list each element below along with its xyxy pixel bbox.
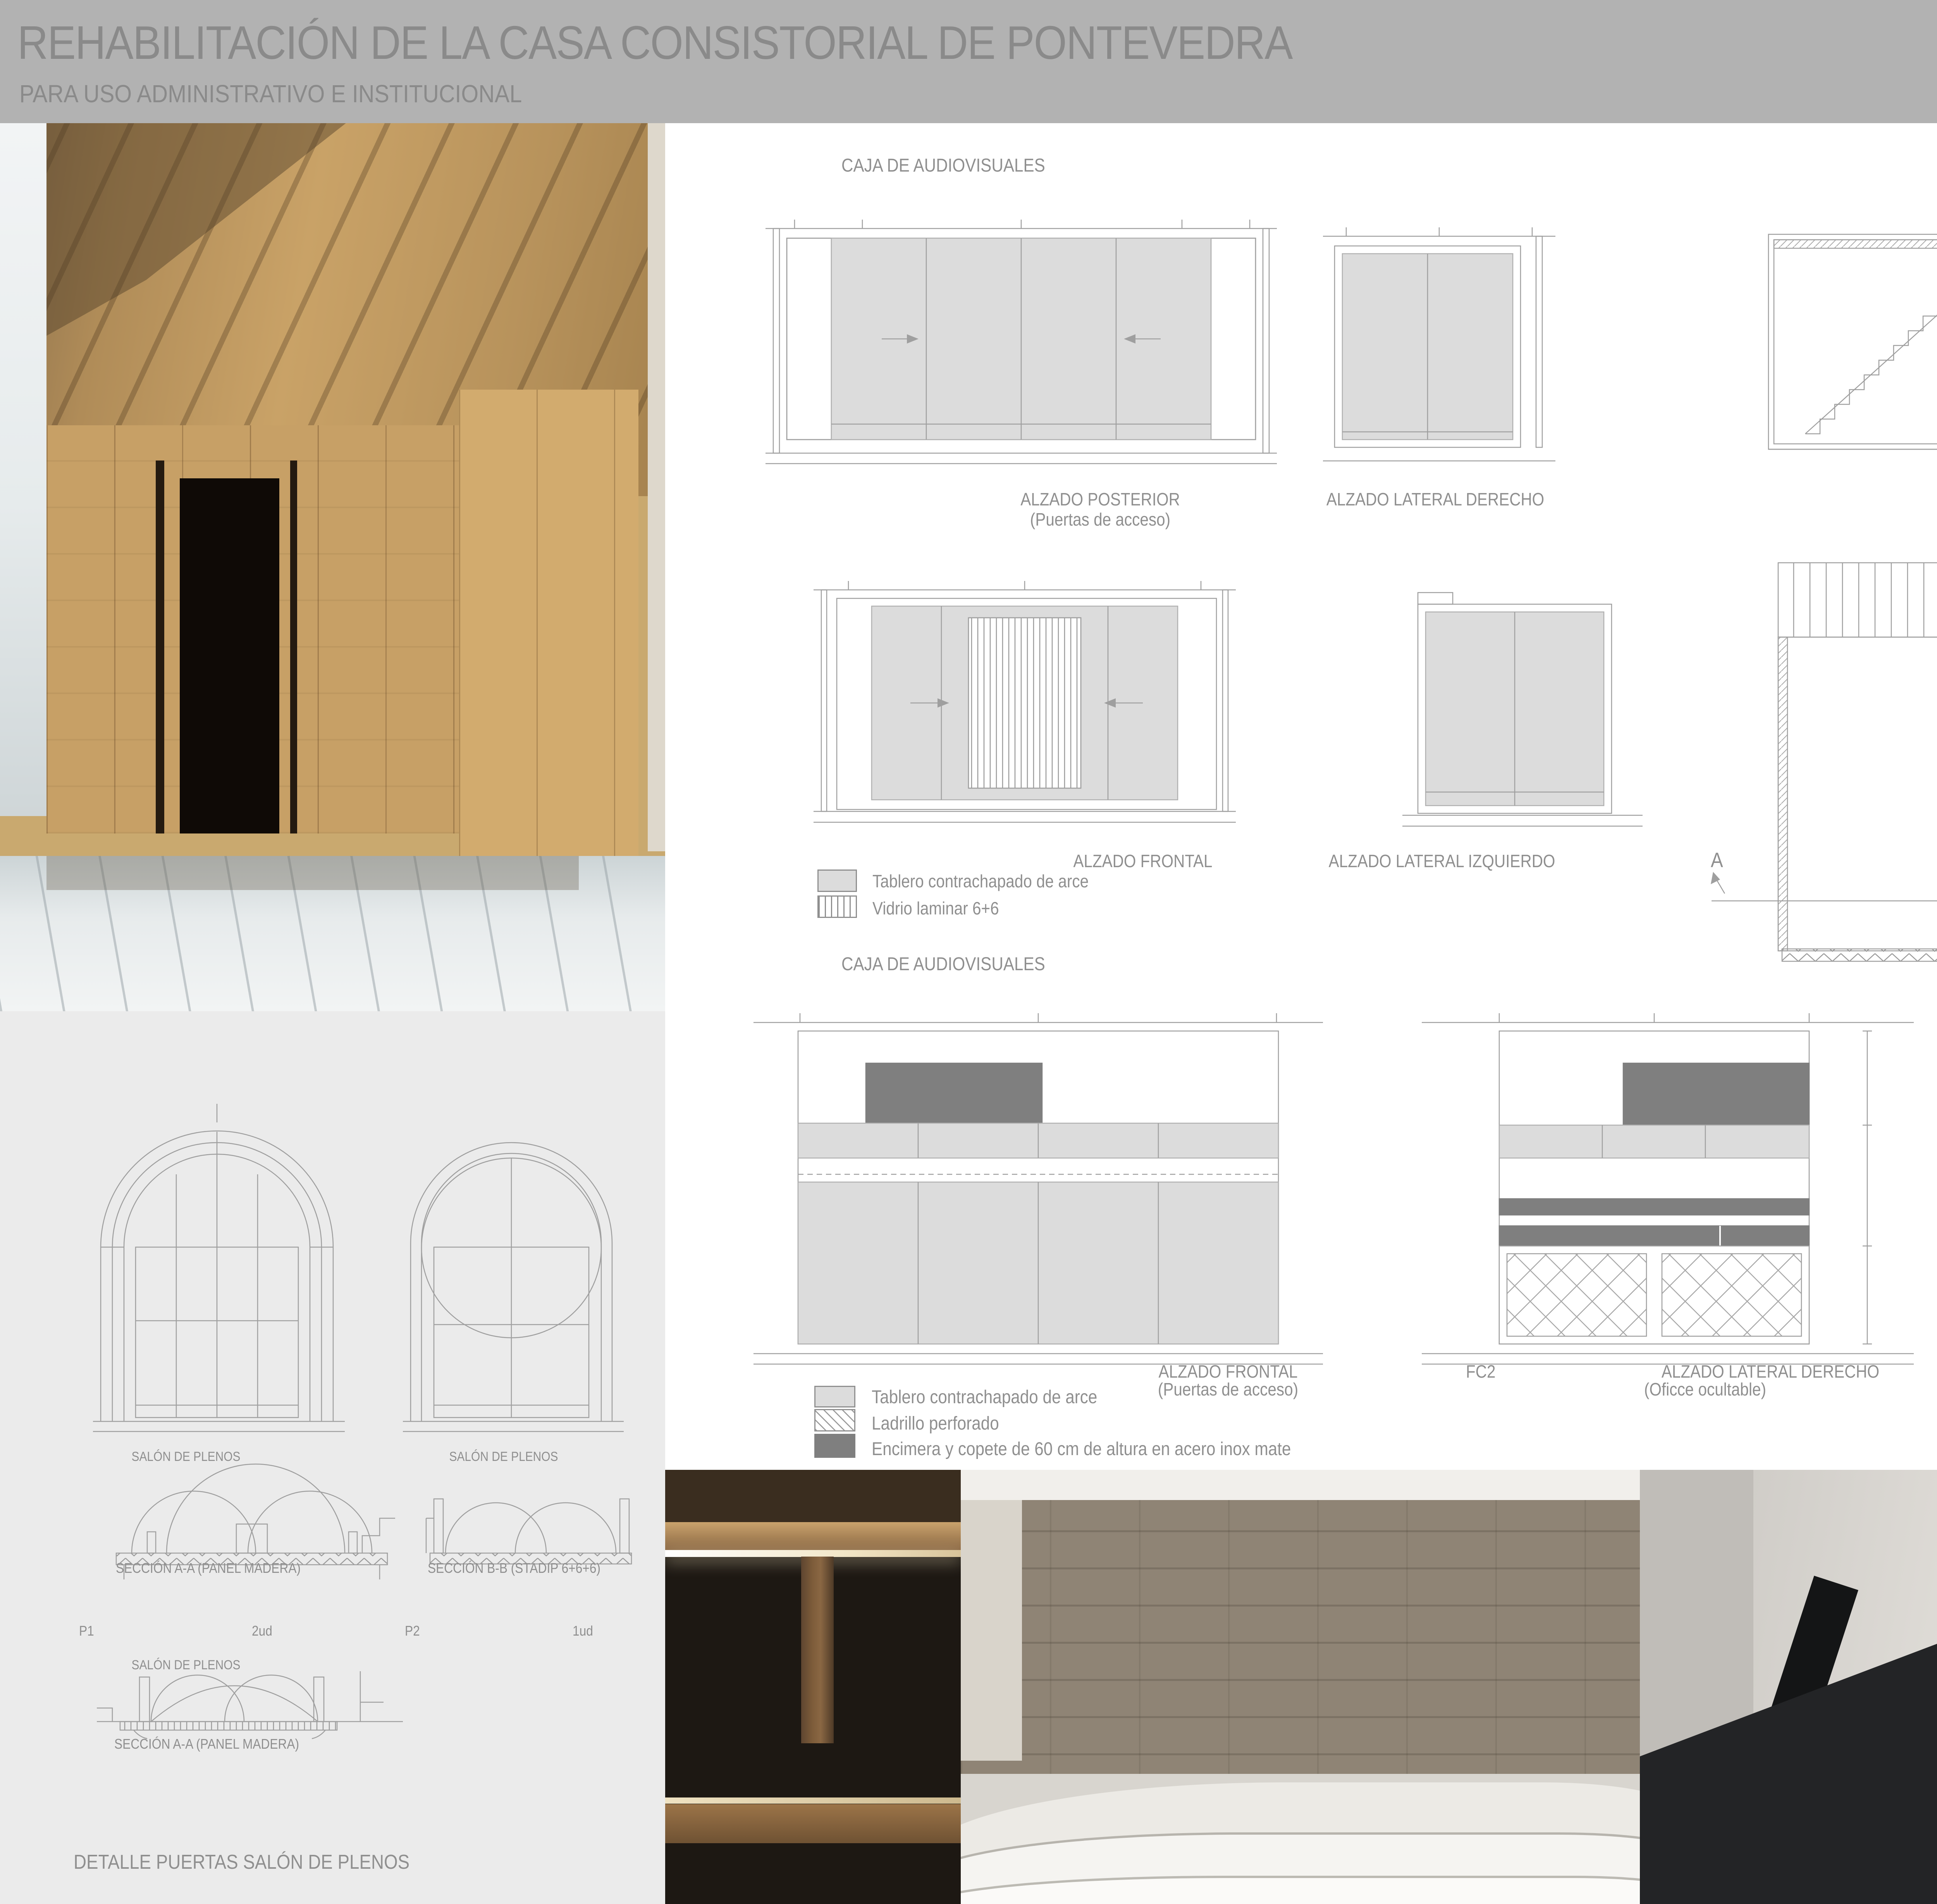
legend-swatch-plywood-2 [814, 1386, 855, 1407]
av-bottom-title: CAJA DE AUDIOVISUALES [841, 954, 1045, 975]
alzado-lateral-derecho-drawing [1323, 223, 1555, 471]
alzado-frontal-mid-label: ALZADO FRONTAL [1073, 851, 1212, 871]
alzado-lateral-izquierdo-mid-label: ALZADO LATERAL IZQUIERDO [1329, 851, 1555, 871]
photo-ceiling-band [961, 1470, 1640, 1500]
alzado-lateral-derecho-label: ALZADO LATERAL DERECHO [1326, 489, 1544, 510]
alzado-lateral-izquierdo-mid-drawing [1402, 583, 1643, 854]
legend-swatch-steel [814, 1434, 855, 1458]
legend-swatch-brick [814, 1409, 855, 1431]
alzado-frontal-puertas-sublabel: (Puertas de acceso) [1158, 1379, 1298, 1400]
seccion-aa-panel-label-2: SECCIÓN A-A (PANEL MADERA) [114, 1736, 299, 1752]
legend-swatch-plywood-1 [817, 870, 857, 892]
photo-steel-wood-detail [1640, 1470, 1937, 1904]
legend-plywood-label-2: Tablero contrachapado de arce [872, 1387, 1097, 1408]
legend-glass-label: Vidrio laminar 6+6 [872, 898, 999, 919]
photo-lower-shelf [665, 1804, 961, 1843]
photo-door-opening [180, 478, 280, 833]
alzado-frontal-drawing [814, 575, 1236, 862]
arch-door-drawing-2 [387, 1073, 639, 1445]
photo-led-strip-1 [665, 1550, 961, 1557]
photo-shelf-top [665, 1470, 961, 1522]
p2-qty-label: 1ud [573, 1623, 593, 1639]
legend-plywood-label-1: Tablero contrachapado de arce [872, 871, 1089, 892]
photo-wood-box-side-joints [459, 390, 639, 860]
legend-swatch-glass [817, 895, 857, 918]
alzado-frontal-puertas-drawing [753, 1007, 1323, 1387]
photo-stone-stairs [961, 1470, 1640, 1904]
salon-plenos-label-1: SALÓN DE PLENOS [131, 1449, 240, 1464]
alzado-posterior-label: ALZADO POSTERIOR [1020, 489, 1180, 510]
legend-brick-label: Ladrillo perforado [872, 1413, 999, 1434]
photo-side-wall [961, 1500, 1022, 1761]
photo-window-light [0, 123, 46, 816]
salon-plenos-label-2: SALÓN DE PLENOS [449, 1449, 558, 1464]
p1-qty-label: 2ud [252, 1623, 272, 1639]
project-title: REHABILITACIÓN DE LA CASA CONSISTORIAL D… [17, 15, 1292, 70]
photo-shelf-led [665, 1470, 961, 1904]
alzado-posterior-sublabel: (Puertas de acceso) [1030, 509, 1170, 530]
photo-floor-reflection [46, 856, 579, 890]
photo-right-wall [648, 123, 665, 851]
planta-center-drawing [1705, 560, 1937, 1063]
legend-steel-label: Encimera y copete de 60 cm de altura en … [872, 1438, 1291, 1460]
presentation-board: REHABILITACIÓN DE LA CASA CONSISTORIAL D… [0, 0, 1937, 1904]
photo-led-strip-2 [665, 1797, 961, 1804]
arch-door-drawing-1 [70, 1073, 368, 1445]
alzado-posterior-drawing [766, 215, 1277, 471]
section-mark-a: A [1711, 848, 1723, 872]
photo-wall-slot-left [156, 461, 164, 833]
p1-label: P1 [79, 1623, 94, 1639]
p2-label: P2 [405, 1623, 420, 1639]
fc2-oficce-drawing [1422, 1007, 1914, 1387]
seccion-aa-stair-drawing [1767, 232, 1937, 461]
alzado-lateral-derecho-oficce-sublabel: (Oficce ocultable) [1644, 1379, 1766, 1400]
photo-wood-box-side [459, 390, 639, 860]
photo-marble-floor [0, 856, 665, 1011]
salon-plenos-label-3: SALÓN DE PLENOS [131, 1658, 240, 1673]
header-bar: REHABILITACIÓN DE LA CASA CONSISTORIAL D… [0, 0, 1937, 123]
photo-wall-slot-right [290, 461, 298, 833]
photo-shelf-face [665, 1522, 961, 1550]
seccion-aa-drawing-2 [97, 1671, 403, 1743]
project-subtitle: PARA USO ADMINISTRATIVO E INSTITUCIONAL [19, 79, 522, 108]
detalle-puertas-title: DETALLE PUERTAS SALÓN DE PLENOS [74, 1851, 409, 1874]
av-top-title: CAJA DE AUDIOVISUALES [841, 155, 1045, 176]
photo-wood-post [801, 1557, 834, 1743]
seccion-bb-stadip-label: SECCIÓN B-B (STADIP 6+6+6) [428, 1560, 600, 1576]
fc2-label: FC2 [1466, 1361, 1495, 1382]
seccion-aa-panel-label-1: SECCIÓN A-A (PANEL MADERA) [116, 1560, 301, 1576]
photo-wood-interior [0, 123, 665, 1011]
